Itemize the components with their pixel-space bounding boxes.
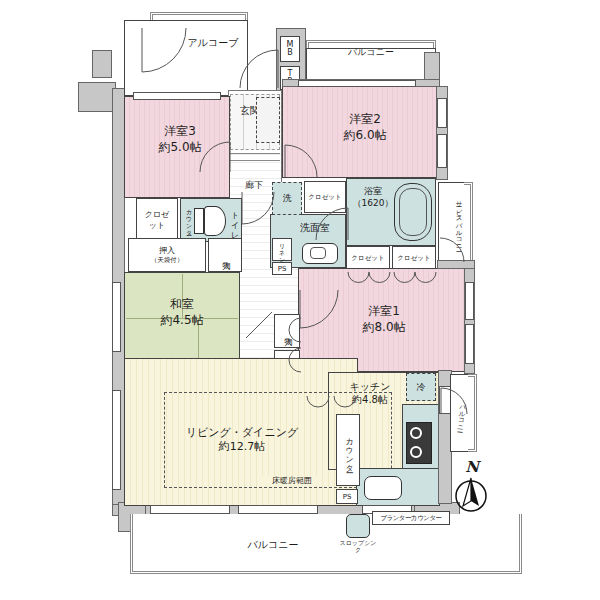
living-size: 約12.7帖 <box>172 440 312 454</box>
balcony-right-rail <box>468 374 477 452</box>
yofu1-size: 約8.0帖 <box>340 320 428 336</box>
room-alcove <box>124 20 248 96</box>
yofu2-name: 洋室2 <box>322 112 408 128</box>
yofu3-window <box>133 92 221 100</box>
senmen-sink-bowl <box>310 247 326 259</box>
linen-storage: リネン庫 <box>272 238 292 261</box>
stove-burner2 <box>410 446 422 458</box>
closet-hall-label: クロゼット <box>308 193 341 202</box>
wall-stub-topleft1 <box>92 50 112 78</box>
yofu1-right-window1 <box>465 282 474 320</box>
linen-label: リネン庫 <box>279 239 285 260</box>
counter-kitchen-label: カウンター <box>343 432 354 468</box>
yofu3-label: 洋室3 約5.0帖 <box>142 124 218 155</box>
service-balcony-rail <box>464 182 473 264</box>
wall-stub-topleft2 <box>78 82 116 112</box>
shoes-box <box>256 97 280 143</box>
toilet-tank <box>194 208 204 234</box>
yofu1-name: 洋室1 <box>340 304 428 320</box>
balcony-bottom-label: バルコニー <box>228 538 318 551</box>
toilet-label: トイレ <box>226 202 239 240</box>
washer-label: 洗 <box>283 192 292 205</box>
pipe-space-1: PS <box>272 262 292 275</box>
balcony-top-label: バルコニー <box>328 47 414 59</box>
bathtub-inner <box>399 188 427 236</box>
closet-bath2-label: クロゼット <box>397 254 430 263</box>
alcove-rail <box>150 12 248 20</box>
pipe-space-2: PS <box>336 489 358 504</box>
oshiire-label: 押入 <box>151 245 184 256</box>
yofu2-right-window2 <box>437 134 447 168</box>
ps1-label: PS <box>278 265 287 273</box>
kitchen-sink <box>364 476 402 500</box>
stove-burner1 <box>410 427 422 439</box>
floor-plan: アルコーブ MB TR バルコニー 玄関 シューズボックス 廊下 洋室3 約5.… <box>0 0 600 600</box>
service-balcony-label: サービスバルコニー <box>440 186 462 258</box>
genkan-step2 <box>230 160 280 161</box>
closet-yofu3-label: クロゼット <box>143 209 171 231</box>
closet-yofu3: クロゼット <box>136 198 178 242</box>
yofu3-size: 約5.0帖 <box>142 140 218 156</box>
meter-box: MB <box>280 36 300 62</box>
north-label: N <box>462 458 482 478</box>
oshiire-note: （天袋付） <box>151 256 184 265</box>
yofu2-right-window1 <box>437 98 447 128</box>
fridge-label: 冷 <box>417 381 426 394</box>
ps2-label: PS <box>343 493 352 501</box>
meter-box-label: MB <box>285 41 295 58</box>
closet-hall: クロゼット <box>304 181 346 213</box>
planter-counter-label: プランターカウンター <box>380 514 441 523</box>
kitchen-name: キッチン <box>338 380 402 393</box>
yofu2-label: 洋室2 約6.0帖 <box>322 112 408 143</box>
yofu3-name: 洋室3 <box>142 124 218 140</box>
mono-a: 物入 <box>208 238 242 272</box>
counter-kitchen: カウンター <box>336 414 360 486</box>
washitsu-size: 約4.5帖 <box>142 313 222 329</box>
slop-sink-label: スロップシンク <box>338 540 378 553</box>
closet-bath1-label: クロゼット <box>351 254 384 263</box>
senmen-label: 洗面室 <box>292 221 338 234</box>
washitsu-window <box>112 282 121 352</box>
oshiire: 押入 （天袋付） <box>128 238 206 272</box>
slop-sink <box>346 514 370 538</box>
alcove-label: アルコーブ <box>168 36 258 49</box>
planter-counter: プランターカウンター <box>372 511 450 525</box>
toilet-bowl <box>204 206 226 236</box>
kitchen-label: キッチン 約4.8帖 <box>338 380 402 406</box>
hallway-label: 廊下 <box>238 180 270 192</box>
fridge-space: 冷 <box>406 373 436 401</box>
yofu2-top-window <box>298 80 416 87</box>
living-left-window <box>112 390 121 490</box>
toilet-counter-label: カウンター <box>182 202 192 236</box>
kitchen-size: 約4.8帖 <box>338 393 402 406</box>
genkan-step1 <box>230 153 280 154</box>
washitsu-label: 和室 約4.5帖 <box>142 297 222 328</box>
heating-label: 床暖房範囲 <box>262 476 322 486</box>
yofu2-size: 約6.0帖 <box>322 128 408 144</box>
living-window2 <box>238 505 318 514</box>
washer-space: 洗 <box>272 182 302 215</box>
yofu1-right-window2 <box>465 324 474 364</box>
living-window1 <box>150 505 230 514</box>
balcony-bottom-area <box>130 514 522 574</box>
mono-b: 物入 <box>274 314 300 348</box>
living-name: リビング・ダイニング <box>172 426 312 440</box>
yofu1-label: 洋室1 約8.0帖 <box>340 304 428 335</box>
living-label: リビング・ダイニング 約12.7帖 <box>172 426 312 455</box>
washitsu-name: 和室 <box>142 297 222 313</box>
